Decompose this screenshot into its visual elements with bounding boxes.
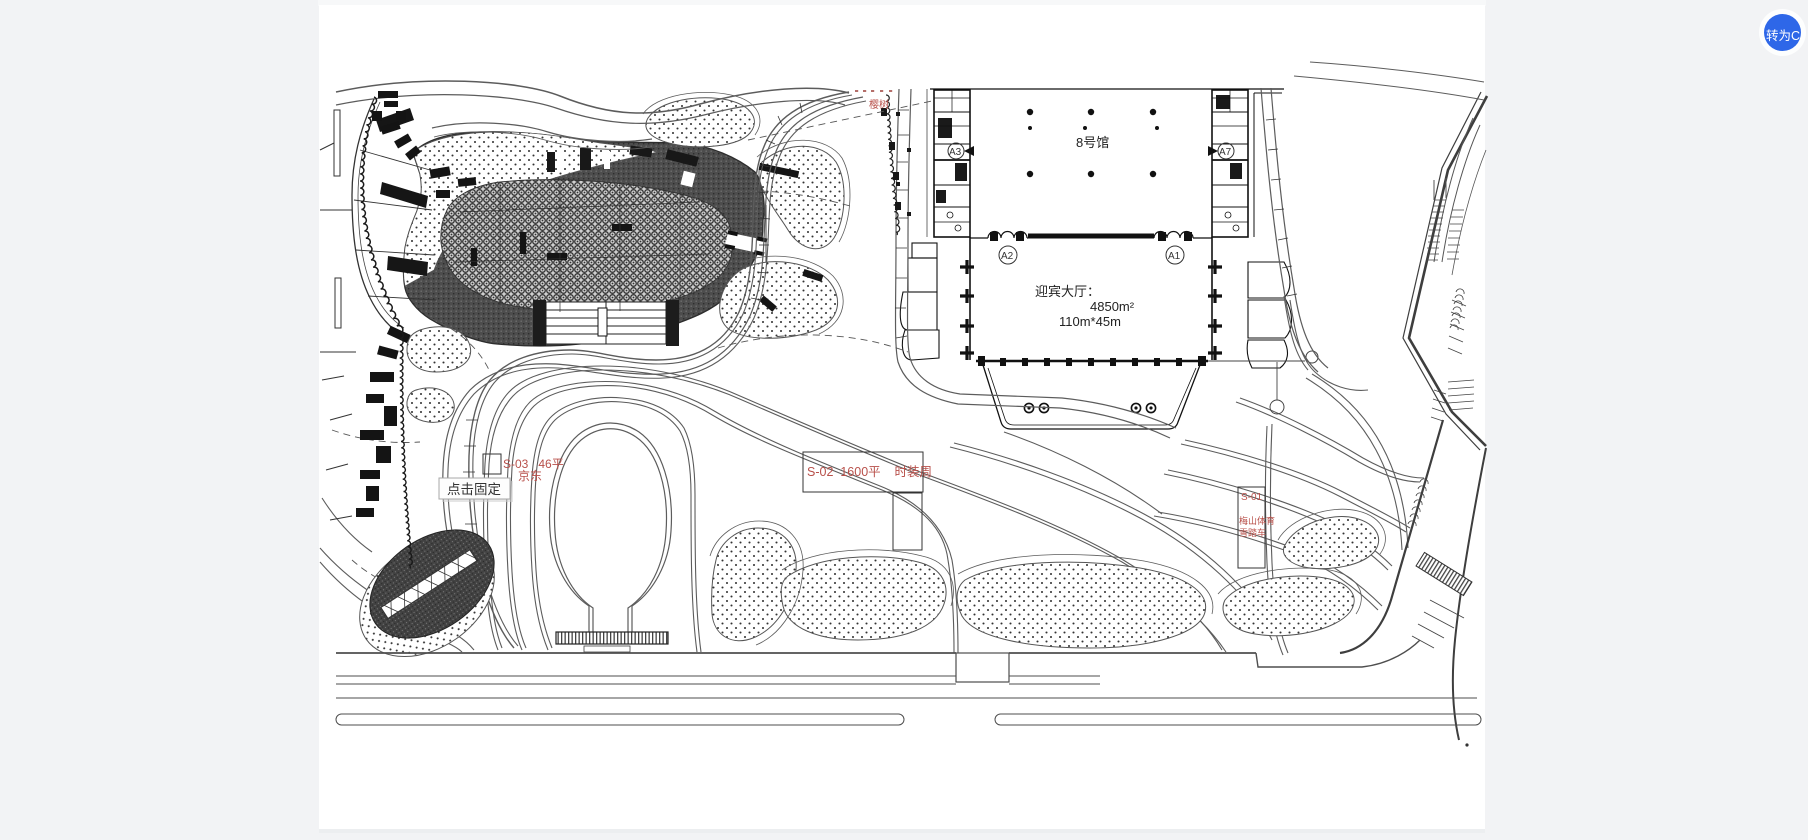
svg-text:8号馆: 8号馆 [1076,135,1109,150]
svg-text:A1: A1 [1168,251,1181,262]
svg-text:110m*45m: 110m*45m [1059,314,1121,329]
svg-text:雪踏车: 雪踏车 [1239,527,1266,538]
svg-text:迎宾大厅：: 迎宾大厅： [1035,284,1100,299]
svg-text:A7: A7 [1219,147,1232,158]
svg-text:S-01: S-01 [1241,492,1263,503]
svg-text:京东: 京东 [518,469,542,483]
svg-text:樱树: 樱树 [869,98,889,111]
svg-text:梅山体育: 梅山体育 [1239,515,1275,526]
svg-text:A3: A3 [949,147,962,158]
svg-text:点击固定: 点击固定 [447,482,501,497]
svg-text:S-02 1600平 时装周: S-02 1600平 时装周 [807,465,932,479]
svg-text:A2: A2 [1001,251,1014,262]
svg-text:4850m²: 4850m² [1090,299,1135,314]
